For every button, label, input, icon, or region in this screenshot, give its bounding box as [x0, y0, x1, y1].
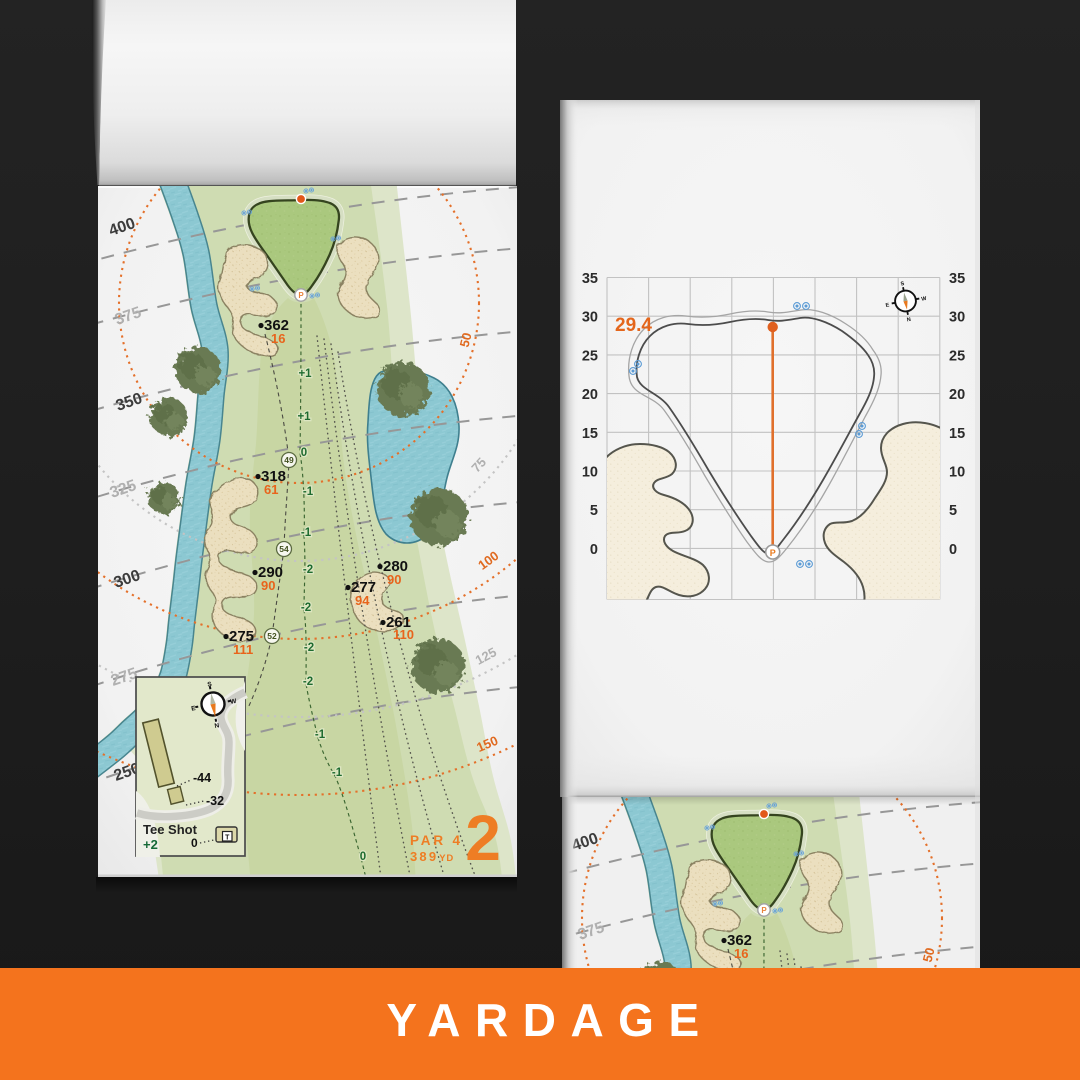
svg-text:YARDAGE: YARDAGE	[386, 994, 713, 1046]
svg-text:25: 25	[582, 348, 598, 364]
svg-text:20: 20	[949, 387, 965, 403]
svg-text:29.4: 29.4	[615, 315, 652, 336]
svg-text:5: 5	[949, 503, 957, 519]
svg-text:20: 20	[582, 387, 598, 403]
svg-text:30: 30	[949, 310, 965, 326]
svg-text:30: 30	[582, 310, 598, 326]
svg-text:35: 35	[949, 271, 965, 287]
svg-text:35: 35	[582, 271, 598, 287]
svg-text:25: 25	[949, 348, 965, 364]
svg-text:10: 10	[949, 465, 965, 481]
svg-text:P: P	[770, 548, 776, 558]
svg-text:15: 15	[582, 426, 598, 442]
svg-text:5: 5	[590, 503, 598, 519]
svg-text:15: 15	[949, 426, 965, 442]
svg-text:10: 10	[582, 465, 598, 481]
svg-text:0: 0	[949, 542, 957, 558]
svg-text:0: 0	[590, 542, 598, 558]
